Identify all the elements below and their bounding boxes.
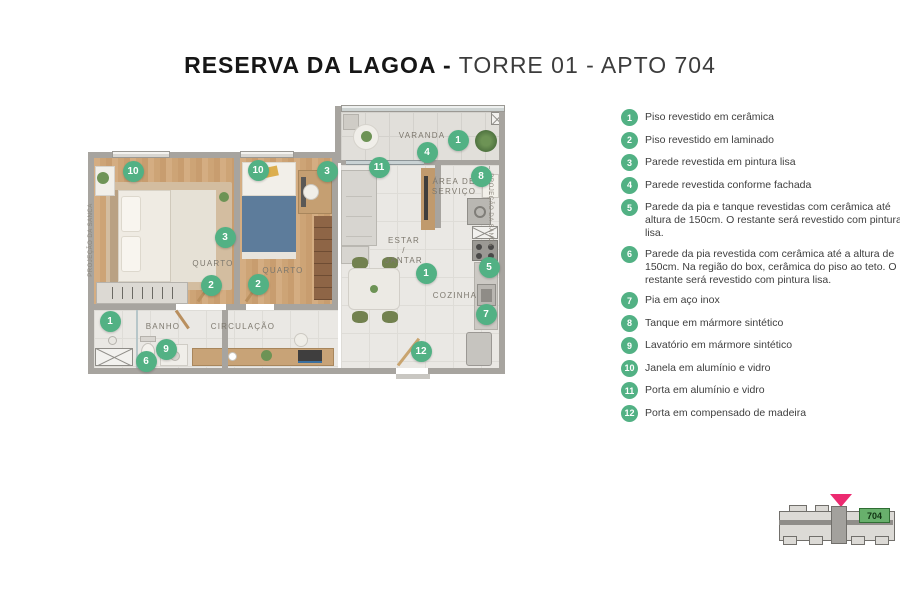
legend-item-text: Porta em compensado de madeira	[645, 407, 900, 420]
toilet-tank	[140, 336, 156, 342]
legend-item-number: 12	[621, 405, 638, 422]
tower-unit-block	[783, 536, 797, 545]
plan-marker-12: 12	[411, 341, 432, 362]
legend-item: 7Pia em aço inox	[621, 292, 900, 309]
legend-item-number: 9	[621, 337, 638, 354]
legend-item-number: 4	[621, 177, 638, 194]
legend-item-text: Pia em aço inox	[645, 294, 900, 307]
plant-icon	[361, 131, 372, 142]
wardrobe	[96, 282, 188, 304]
tower-unit-block	[851, 536, 865, 545]
legend-item: 12Porta em compensado de madeira	[621, 405, 900, 422]
duct-shaft	[472, 226, 498, 239]
legend-item-text: Janela em alumínio e vidro	[645, 362, 900, 375]
plant-icon	[261, 350, 272, 361]
wall	[274, 304, 338, 310]
wall	[234, 152, 240, 310]
desk-chair	[303, 184, 319, 200]
plan-marker-2: 2	[248, 274, 269, 295]
table-plant-icon	[370, 285, 378, 293]
dining-chair	[382, 311, 398, 323]
tower-core	[831, 506, 847, 544]
coffee-cup	[228, 352, 237, 361]
plan-marker-5: 5	[479, 257, 500, 278]
plan-marker-8: 8	[471, 166, 492, 187]
bookshelf	[314, 216, 332, 300]
room-label: ÁREA DE SERVIÇO	[432, 177, 476, 197]
window	[112, 151, 170, 158]
plan-marker-10: 10	[248, 160, 269, 181]
balcony-railing	[341, 105, 505, 112]
plan-marker-2: 2	[201, 275, 222, 296]
burner	[476, 253, 482, 259]
plan-marker-6: 6	[136, 351, 157, 372]
legend-item-number: 2	[621, 132, 638, 149]
legend-item-text: Piso revestido em cerâmica	[645, 111, 900, 124]
legend-item-text: Lavatório em mármore sintético	[645, 339, 900, 352]
bed1-pillow	[121, 236, 141, 272]
plan-marker-3: 3	[215, 227, 236, 248]
entry-step	[396, 374, 430, 379]
legend-item-number: 3	[621, 154, 638, 171]
balcony-plant	[475, 130, 497, 152]
legend-item-number: 7	[621, 292, 638, 309]
tv	[424, 176, 428, 220]
highlighted-unit: 704	[859, 508, 890, 523]
tower-unit-block	[809, 536, 823, 545]
wall	[499, 106, 505, 374]
legend-item-text: Tanque em mármore sintético	[645, 317, 900, 330]
wall	[226, 304, 246, 310]
room-label: QUARTO	[192, 259, 233, 269]
legend-item-text: Piso revestido em laminado	[645, 134, 900, 147]
bed1-headboard	[110, 190, 118, 282]
dining-chair	[352, 311, 368, 323]
unit-number: 704	[867, 511, 882, 521]
wall	[428, 368, 505, 374]
laptop	[298, 350, 322, 363]
bed2-foot	[242, 252, 296, 259]
plan-marker-9: 9	[156, 339, 177, 360]
room-label: VARANDA	[399, 131, 445, 141]
washer-door	[474, 206, 486, 218]
legend-item-text: Parede da pia revestida com cerâmica até…	[645, 248, 900, 287]
legend-item-number: 8	[621, 315, 638, 332]
legend-item-number: 11	[621, 382, 638, 399]
wall	[88, 368, 396, 374]
plant-icon	[219, 192, 229, 202]
room-label: CIRCULAÇÃO	[211, 322, 275, 332]
legend-item-number: 5	[621, 199, 638, 216]
room-label: BANHO	[146, 322, 180, 332]
plan-marker-3: 3	[317, 161, 338, 182]
bed1-pillow	[121, 196, 141, 232]
plan-marker-7: 7	[476, 304, 497, 325]
legend: 1Piso revestido em cerâmica2Piso revesti…	[621, 109, 900, 427]
plan-marker-1: 1	[100, 311, 121, 332]
legend-item: 2Piso revestido em laminado	[621, 132, 900, 149]
legend-item-text: Parede revestida em pintura lisa	[645, 156, 900, 169]
room-label: COZINHA	[433, 291, 477, 301]
legend-item: 4Parede revestida conforme fachada	[621, 177, 900, 194]
wall	[88, 304, 176, 310]
shower-tray	[95, 348, 133, 366]
fridge	[466, 332, 492, 366]
room-label: QUARTO	[262, 266, 303, 276]
sanca-projection-label: PROJEÇÃO DA SANCA	[88, 203, 94, 277]
plant-icon	[97, 172, 109, 184]
plan-marker-1: 1	[416, 263, 437, 284]
legend-item: 9Lavatório em mármore sintético	[621, 337, 900, 354]
legend-item: 3Parede revestida em pintura lisa	[621, 154, 900, 171]
burner	[476, 244, 482, 250]
legend-item: 6Parede da pia revestida com cerâmica at…	[621, 246, 900, 287]
legend-item-text: Porta em alumínio e vidro	[645, 384, 900, 397]
legend-item: 1Piso revestido em cerâmica	[621, 109, 900, 126]
legend-item-number: 10	[621, 360, 638, 377]
legend-item: 11Porta em alumínio e vidro	[621, 382, 900, 399]
hall-chair	[294, 333, 308, 347]
legend-item-text: Parede da pia e tanque revestidas com ce…	[645, 201, 900, 240]
kitchen-sink	[477, 284, 496, 306]
plan-marker-10: 10	[123, 161, 144, 182]
shower-head	[108, 336, 117, 345]
legend-item: 10Janela em alumínio e vidro	[621, 360, 900, 377]
legend-item-number: 6	[621, 246, 638, 263]
sofa	[341, 170, 377, 246]
room-label: ESTAR / JANTAR	[385, 236, 423, 266]
plan-marker-1: 1	[448, 130, 469, 151]
wardrobe-hangers	[103, 287, 181, 299]
legend-item: 8Tanque em mármore sintético	[621, 315, 900, 332]
window	[240, 151, 294, 158]
tower-unit-block	[875, 536, 889, 545]
sofa-cushions	[346, 177, 372, 239]
plan-marker-11: 11	[369, 157, 390, 178]
sink-basin	[481, 289, 492, 302]
wall	[222, 310, 228, 368]
legend-item-text: Parede revestida conforme fachada	[645, 179, 900, 192]
legend-item-number: 1	[621, 109, 638, 126]
legend-item: 5Parede da pia e tanque revestidas com c…	[621, 199, 900, 240]
plan-marker-4: 4	[417, 142, 438, 163]
tower-minimap: 704	[775, 492, 899, 552]
bed2-blanket	[242, 196, 296, 252]
